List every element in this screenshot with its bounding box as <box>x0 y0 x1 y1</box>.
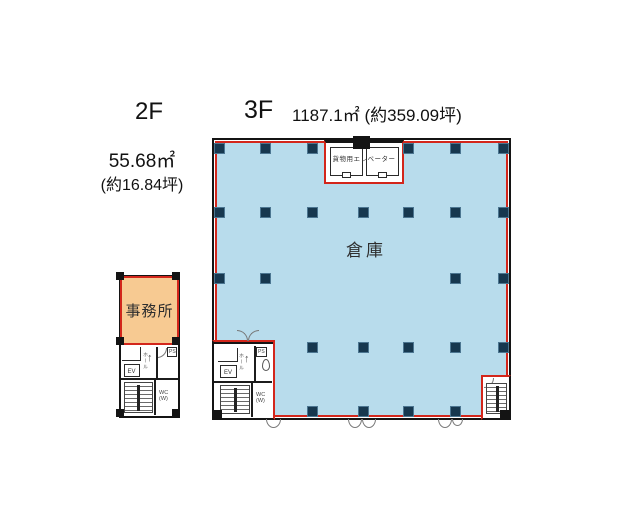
corner-column <box>116 272 124 280</box>
floor2-area: 55.68㎡ <box>92 146 192 173</box>
column-marker <box>450 273 461 284</box>
floor3-title: 3F <box>244 96 273 125</box>
column-marker <box>498 143 509 154</box>
elevator-label: EV <box>224 370 236 376</box>
entrance-door-arc <box>362 419 376 428</box>
column-marker <box>403 406 414 417</box>
corner-column <box>500 410 509 419</box>
corner-column <box>172 272 180 280</box>
floor3-core: EV PS ホール ↑ WC (W) <box>212 340 275 420</box>
wall <box>251 383 253 417</box>
stairs <box>124 382 153 413</box>
column-marker <box>214 207 225 218</box>
column-marker <box>214 273 225 284</box>
corner-column <box>116 337 124 345</box>
wc-text: WC <box>256 392 265 398</box>
floor2-office-area: 事務所 <box>120 276 179 345</box>
wall <box>156 347 158 378</box>
freight-elevator-label: 貨物用エレベーター <box>326 153 402 163</box>
column-marker <box>307 406 318 417</box>
wc-text: WC <box>159 390 168 396</box>
column-marker <box>498 342 509 353</box>
wall <box>214 381 272 383</box>
column-marker <box>307 342 318 353</box>
floor2-core: EV PS ホール ↑ WC (W) <box>119 345 180 418</box>
hall-direction-arrow: ↑ <box>244 354 250 365</box>
wall <box>121 378 178 380</box>
stair-divider <box>137 385 140 411</box>
warehouse-label: 倉庫 <box>334 236 398 261</box>
column-marker <box>260 273 271 284</box>
column-marker <box>307 207 318 218</box>
column-marker <box>260 143 271 154</box>
column-marker <box>358 406 369 417</box>
column-marker <box>498 273 509 284</box>
core3-entry-room <box>218 348 238 362</box>
column-marker <box>260 207 271 218</box>
ps-label: PS <box>169 350 176 356</box>
corner-column <box>116 409 124 417</box>
hall-direction-arrow: ↑ <box>147 353 153 364</box>
column-marker <box>403 207 414 218</box>
corner-column <box>172 409 180 417</box>
wall <box>214 342 273 344</box>
wc-sub: (W) <box>256 398 265 404</box>
corner-column <box>172 337 180 345</box>
stair-divider <box>234 388 237 412</box>
corner-column <box>213 410 222 419</box>
entrance-door-arc <box>452 419 463 426</box>
column-marker <box>307 143 318 154</box>
elevator-box: EV <box>124 364 140 377</box>
ps-label: PS <box>258 350 266 356</box>
entrance-door-arc <box>266 419 281 428</box>
column-marker <box>403 342 414 353</box>
floor3-stair-box <box>481 375 511 420</box>
office-label: 事務所 <box>125 300 173 321</box>
wc-label: WC (W) <box>159 390 168 403</box>
entrance-door-arc <box>348 419 362 428</box>
stairs <box>220 385 250 414</box>
entrance-door-arc <box>438 419 452 428</box>
ps-box: PS <box>167 347 177 357</box>
column-marker <box>358 342 369 353</box>
stair-divider <box>496 386 499 412</box>
column-marker <box>498 207 509 218</box>
column-marker <box>450 143 461 154</box>
wall <box>254 346 256 382</box>
toilet-fixture <box>262 359 270 371</box>
core2-entry-room <box>122 347 141 361</box>
elevator-door-right <box>378 172 387 178</box>
floor2-tsubo: (約16.84坪) <box>86 171 198 195</box>
door-arc <box>157 348 167 358</box>
hall-label: ホール <box>238 353 243 371</box>
column-marker <box>403 143 414 154</box>
column-marker <box>450 207 461 218</box>
elevator-door-left <box>342 172 351 178</box>
column-marker <box>450 342 461 353</box>
elevator-label: EV <box>128 369 140 375</box>
floor3-area: 1187.1㎡ (約359.09坪) <box>292 101 462 126</box>
column-marker <box>358 207 369 218</box>
column-marker <box>214 143 225 154</box>
elevator-box: EV <box>220 365 237 378</box>
elevator-top-column <box>353 136 370 149</box>
floor2-title: 2F <box>135 98 163 126</box>
ps-box: PS <box>256 347 267 357</box>
wc-label: WC (W) <box>256 392 265 405</box>
wc-sub: (W) <box>159 396 168 402</box>
column-marker <box>450 406 461 417</box>
wall <box>154 380 156 415</box>
